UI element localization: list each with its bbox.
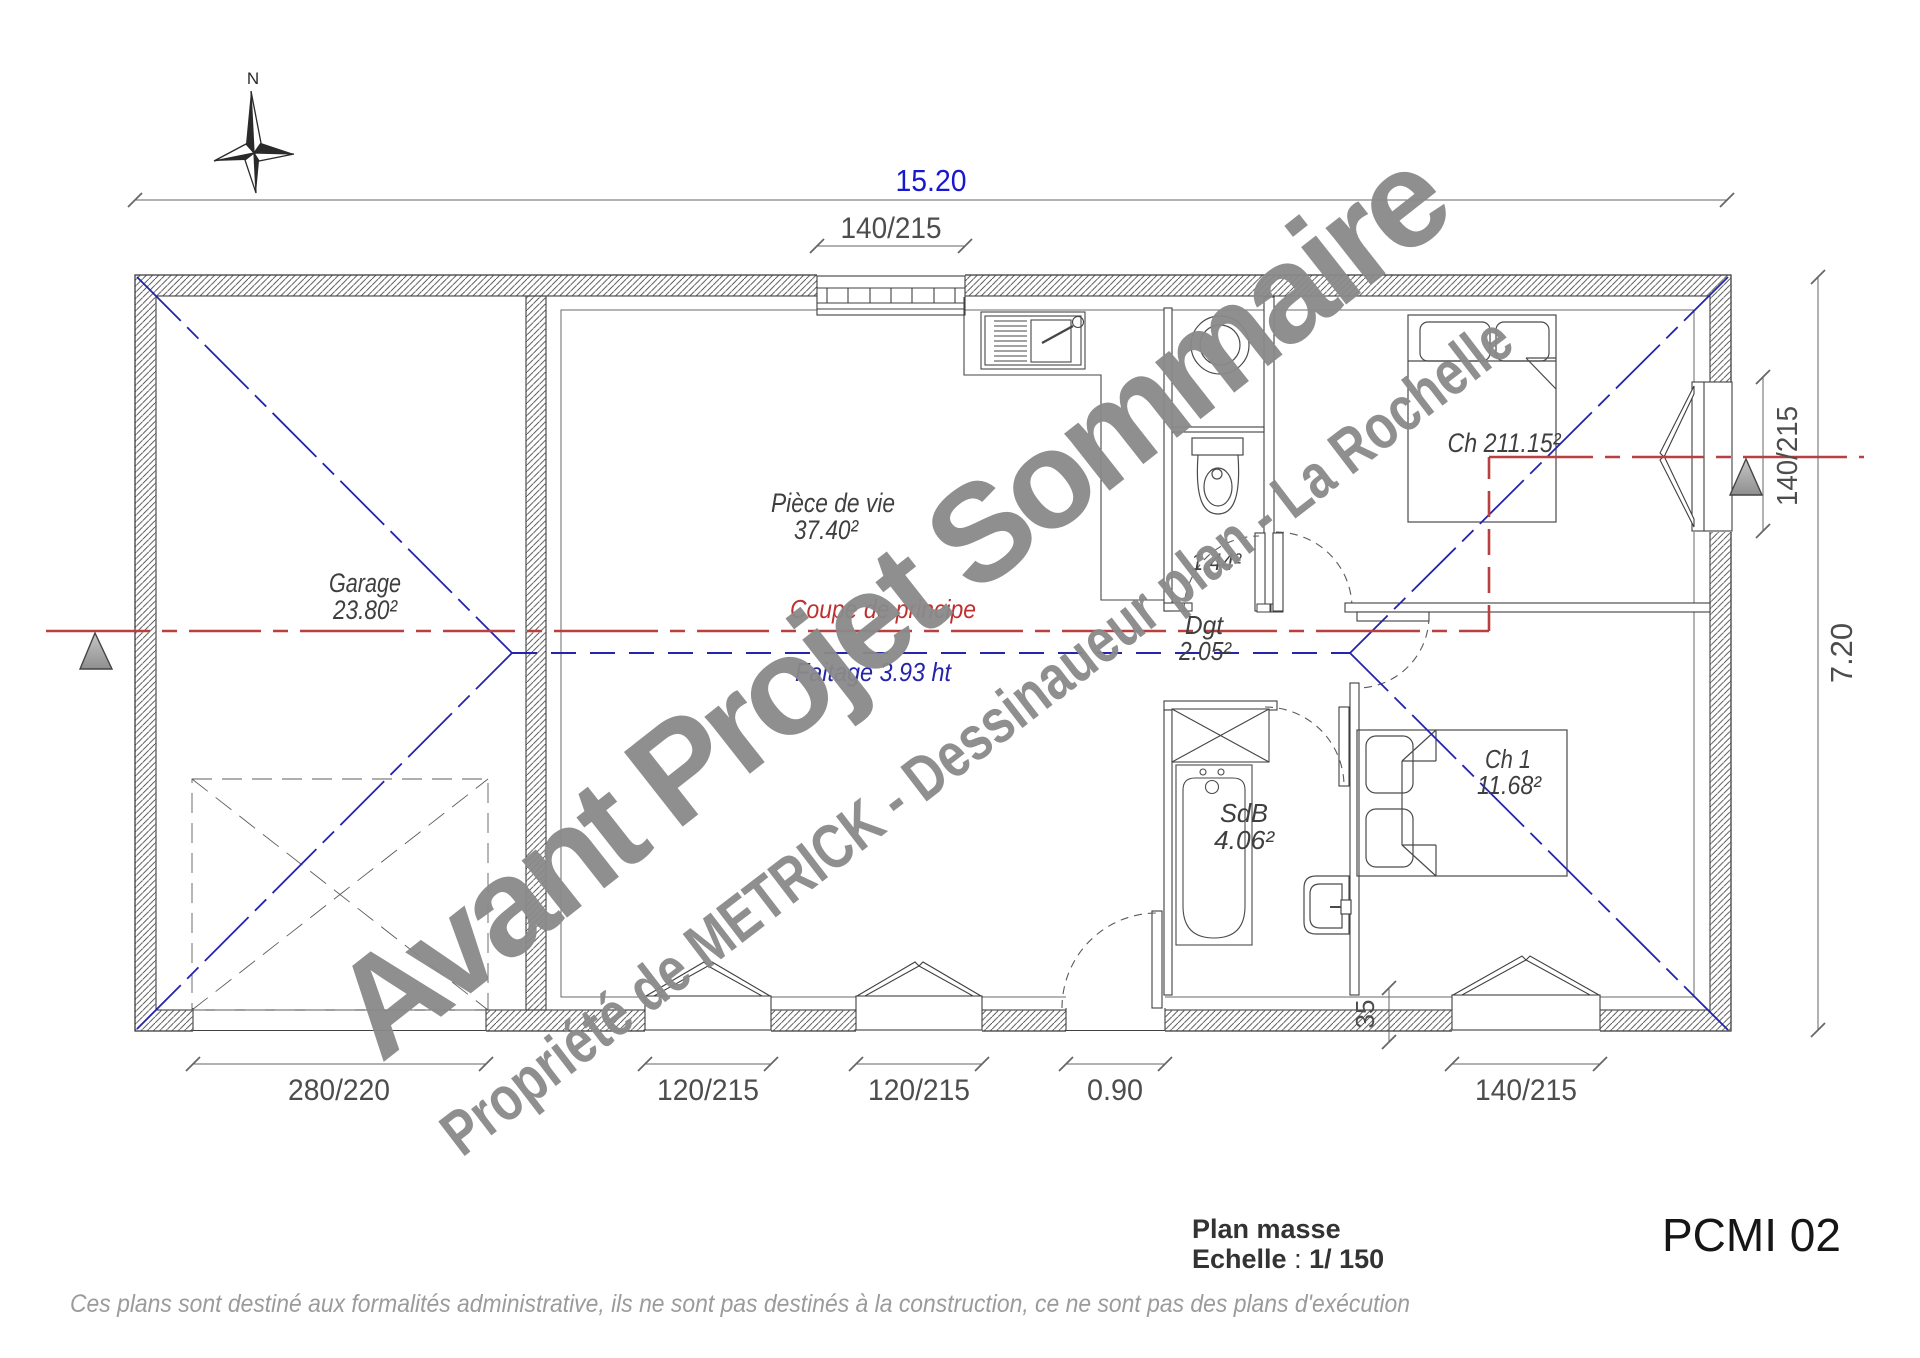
- svg-text:120/215: 120/215: [657, 1074, 759, 1107]
- svg-text:0.90: 0.90: [1087, 1074, 1143, 1107]
- svg-text:280/220: 280/220: [288, 1074, 390, 1107]
- svg-text:PCMI 02: PCMI 02: [1662, 1209, 1841, 1261]
- svg-text:N: N: [247, 69, 259, 88]
- svg-text:4.06²: 4.06²: [1214, 825, 1275, 855]
- svg-text:Echelle : 1/ 150: Echelle : 1/ 150: [1192, 1244, 1384, 1274]
- svg-text:Pièce de vie: Pièce de vie: [771, 488, 895, 518]
- svg-text:120/215: 120/215: [868, 1074, 970, 1107]
- svg-text:140/215: 140/215: [1772, 406, 1804, 506]
- svg-text:11.68²: 11.68²: [1477, 770, 1542, 800]
- svg-text:SdB: SdB: [1220, 798, 1268, 828]
- svg-text:23.80²: 23.80²: [332, 595, 398, 625]
- svg-text:140/215: 140/215: [1475, 1074, 1577, 1107]
- svg-text:Ces plans sont destiné aux for: Ces plans sont destiné aux formalités ad…: [70, 1290, 1410, 1318]
- svg-text:Ch 211.15²: Ch 211.15²: [1448, 428, 1562, 458]
- svg-text:140/215: 140/215: [841, 212, 942, 245]
- svg-text:Garage: Garage: [329, 568, 401, 598]
- svg-text:7.20: 7.20: [1824, 623, 1859, 683]
- svg-text:35: 35: [1350, 1000, 1380, 1029]
- svg-text:Plan masse: Plan masse: [1192, 1214, 1341, 1244]
- svg-text:15.20: 15.20: [896, 163, 967, 198]
- svg-text:2.05²: 2.05²: [1178, 636, 1232, 666]
